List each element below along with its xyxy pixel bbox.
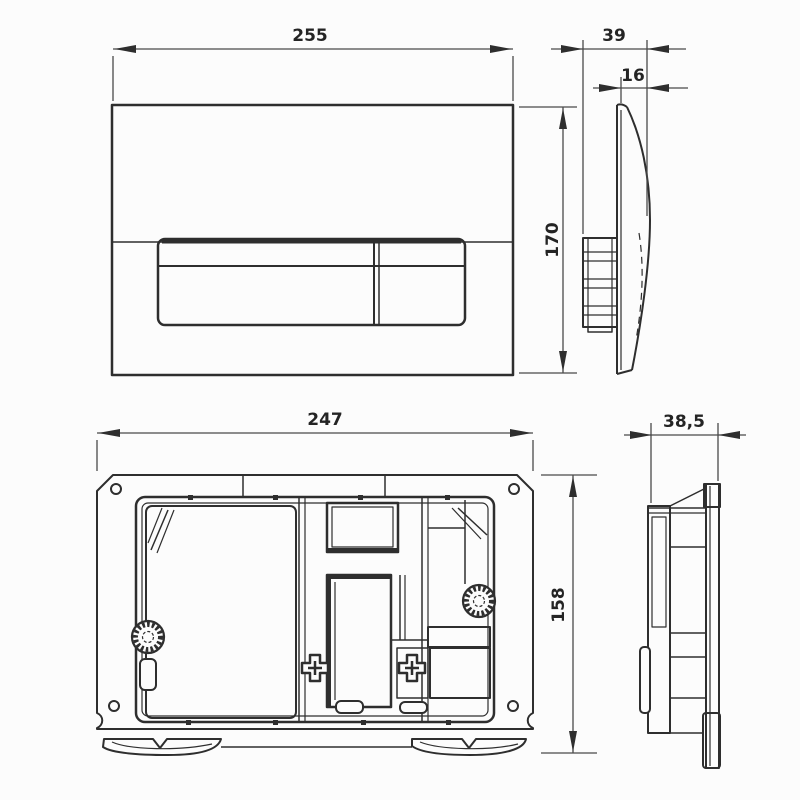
knob-slot [140, 659, 156, 690]
tab-tick [186, 720, 191, 725]
center-top-box-inner [332, 507, 393, 547]
body-stack [648, 506, 670, 733]
screw-hole [109, 701, 119, 711]
body-stack-inner [652, 517, 666, 627]
dim-frame-width: 247 [97, 410, 533, 471]
tab-tick [446, 720, 451, 725]
arrowhead [569, 476, 577, 497]
corner-brace [452, 508, 481, 539]
dim-plate-height: 170 [519, 107, 577, 373]
arrowhead [647, 84, 669, 92]
adjuster-knob-left [132, 621, 164, 653]
cross-screw-left [302, 655, 328, 681]
inner-frame-offset [142, 503, 488, 716]
arrowhead [599, 84, 621, 92]
inner-frame [136, 497, 494, 722]
mechanism-foot [588, 327, 612, 332]
top-slant [670, 489, 704, 506]
dim-frame-height: 158 [541, 475, 597, 753]
screw-hole [509, 484, 519, 494]
tab-tick [273, 495, 278, 500]
frame-side-view [640, 484, 720, 768]
bottom-slot [400, 702, 427, 713]
arrowhead [569, 731, 577, 752]
valve-seat-box [430, 648, 490, 698]
dim-plate-depth: 39 [551, 26, 686, 234]
screw-hole [508, 701, 518, 711]
cross-screw-right [399, 655, 425, 681]
foot-left [103, 739, 221, 755]
plate-top-cap [617, 104, 627, 107]
arrowhead [510, 429, 532, 437]
screw-hole [111, 484, 121, 494]
tab-tick [188, 495, 193, 500]
dim-plate-width: 255 [113, 26, 513, 101]
dim-label-plate-width: 255 [292, 26, 328, 46]
center-top-box [327, 503, 398, 552]
wall-plate [706, 484, 719, 768]
plate-side-view [583, 104, 650, 374]
adjuster-knob-right [463, 585, 495, 617]
arrowhead [559, 351, 567, 372]
arrowhead [561, 45, 583, 53]
left-compartment [146, 506, 296, 718]
button-group-outline [158, 239, 465, 325]
plate-front-view [112, 105, 513, 375]
foot-right [412, 739, 526, 755]
side-knob-bump [640, 647, 650, 713]
corner-brace [458, 508, 487, 535]
tab-tick [273, 720, 278, 725]
arrowhead [98, 429, 120, 437]
dim-label-frame-height: 158 [549, 587, 569, 623]
tab-tick [445, 495, 450, 500]
arrowhead [490, 45, 512, 53]
arrowhead [647, 45, 669, 53]
left-compartment-chamfer [148, 508, 162, 543]
frame-front-view [97, 475, 533, 755]
valve-seat-band [428, 627, 490, 647]
dim-label-plate-height: 170 [543, 222, 563, 258]
plate-bottom-cap [617, 370, 632, 374]
tab-tick [361, 720, 366, 725]
dim-frame-depth: 38,5 [624, 412, 746, 503]
arrowhead [718, 431, 740, 439]
dim-plate-thickness: 16 [593, 66, 688, 103]
bottom-slot [336, 701, 363, 713]
tab-tick [358, 495, 363, 500]
dim-label-plate-thickness: 16 [621, 66, 645, 86]
center-tall-box [327, 575, 391, 707]
drawing-canvas: 255 39 16 170 [0, 0, 800, 800]
arrowhead [630, 431, 652, 439]
dim-label-frame-width: 247 [307, 410, 343, 430]
arrowhead [559, 108, 567, 129]
dim-label-plate-depth: 39 [602, 26, 626, 46]
technical-drawing: 255 39 16 170 [0, 0, 800, 800]
dim-label-frame-depth: 38,5 [663, 412, 705, 432]
arrowhead [114, 45, 136, 53]
